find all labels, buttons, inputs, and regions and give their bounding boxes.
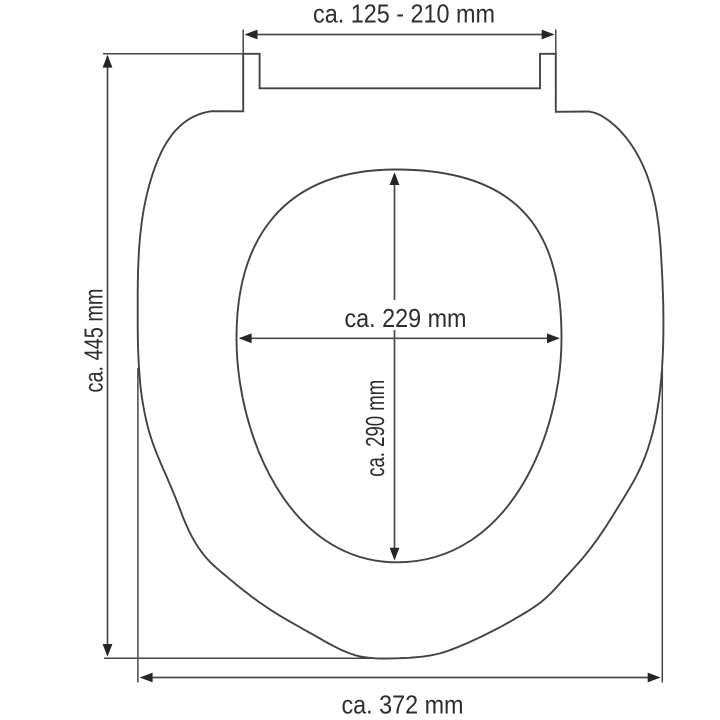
svg-text:ca. 445 mm: ca. 445 mm xyxy=(79,289,109,393)
svg-text:ca. 290 mm: ca. 290 mm xyxy=(360,380,390,477)
svg-text:ca. 372 mm: ca. 372 mm xyxy=(342,690,464,720)
svg-text:ca. 229 mm: ca. 229 mm xyxy=(345,303,467,333)
svg-text:ca. 125 - 210 mm: ca. 125 - 210 mm xyxy=(313,0,495,29)
